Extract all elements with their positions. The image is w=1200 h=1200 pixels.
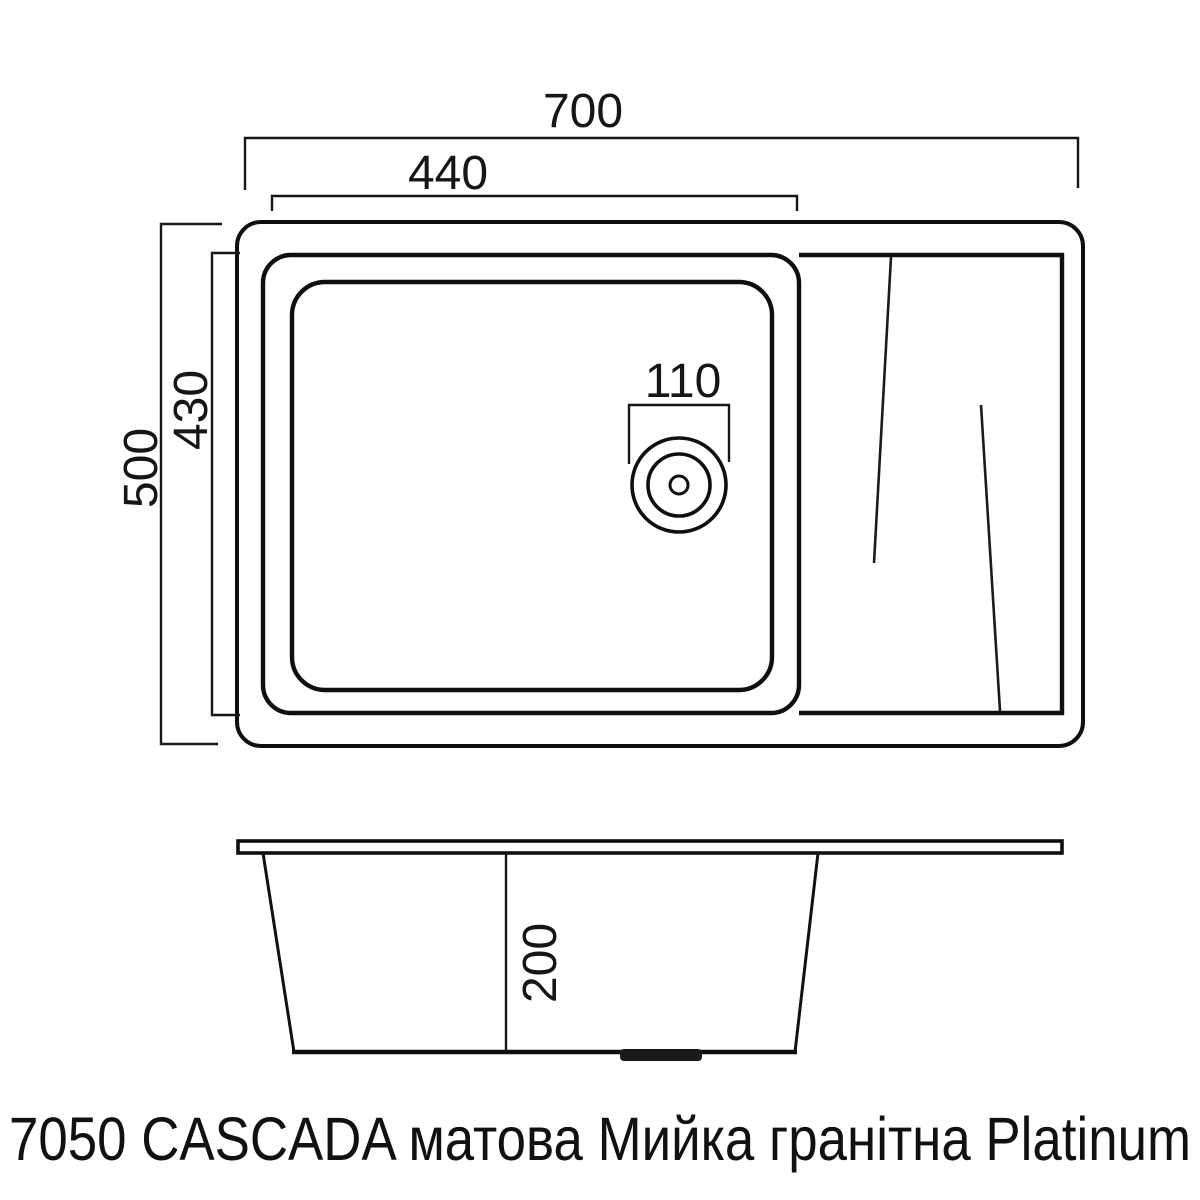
- drain-flange: [620, 1049, 702, 1061]
- drain-middle-circle: [648, 454, 710, 516]
- drainboard-groove-line-2: [981, 405, 1000, 711]
- product-caption: 7050 CASCADA матова Мийка гранітна Plati…: [9, 1105, 1191, 1173]
- bowl-left-wall: [263, 853, 294, 1052]
- top-view: 700 440 500 430 110: [115, 85, 1083, 746]
- drain-center-hole: [670, 476, 688, 494]
- rim-slab-outline: [238, 841, 1062, 853]
- bowl-right-wall: [795, 853, 818, 1052]
- drainboard-groove-line-1: [874, 257, 891, 563]
- sink-technical-drawing: 700 440 500 430 110: [0, 0, 1200, 1200]
- drain-outer-circle: [632, 438, 726, 532]
- dimension-label-200: 200: [514, 923, 567, 1003]
- dimension-overall-depth: 500: [115, 224, 222, 744]
- drainboard-outline: [799, 255, 1062, 713]
- dimension-label-440: 440: [408, 147, 488, 200]
- basin-inner-outline: [292, 282, 772, 690]
- dimension-line-440: [272, 196, 797, 211]
- dimension-label-110: 110: [645, 355, 722, 408]
- sink-outer-outline: [237, 222, 1083, 746]
- basin-outer-outline: [263, 255, 799, 713]
- technical-drawing-page: 700 440 500 430 110: [0, 0, 1200, 1200]
- dimension-label-430: 430: [165, 370, 218, 450]
- dimension-basin-width: 440: [272, 147, 797, 211]
- dimension-basin-depth: 430: [165, 253, 240, 715]
- dimension-drain-diameter: 110: [629, 355, 729, 464]
- section-view: 200: [238, 841, 1062, 1061]
- dimension-bowl-depth: 200: [506, 853, 567, 1052]
- dimension-line-700: [245, 138, 1078, 190]
- dimension-label-700: 700: [543, 85, 623, 138]
- dimension-overall-width: 700: [245, 85, 1078, 190]
- dimension-label-500: 500: [115, 428, 168, 508]
